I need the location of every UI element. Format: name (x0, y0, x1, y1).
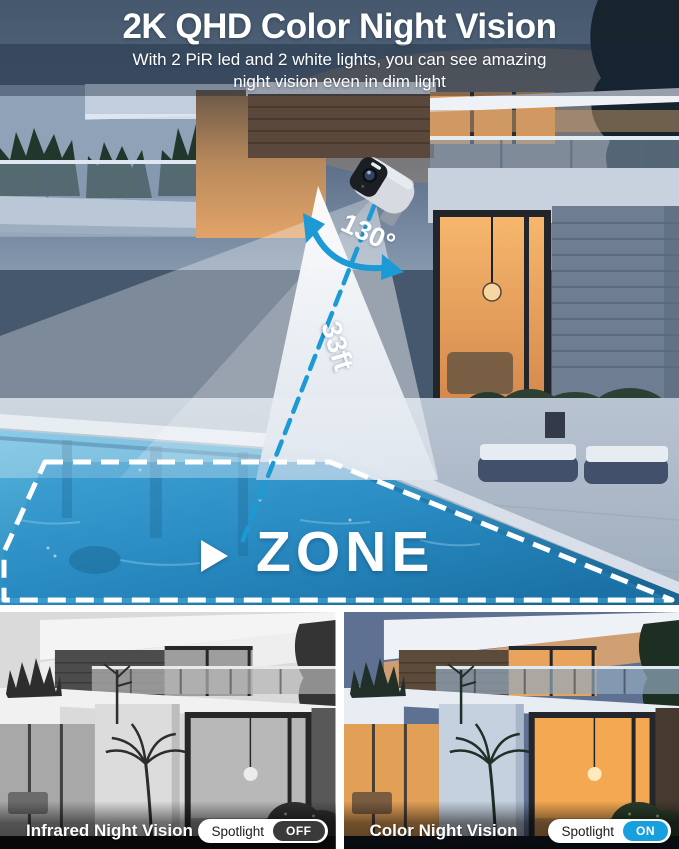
zone-label: ZONE (256, 524, 434, 581)
night-vision-comparison: Infrared Night Vision Spotlight OFF Colo… (0, 612, 679, 849)
infrared-image: Infrared Night Vision Spotlight OFF (0, 612, 336, 849)
hero-scene: 2K QHD Color Night Vision With 2 PiR led… (0, 0, 679, 605)
spotlight-on-badge: ON (623, 821, 668, 841)
play-icon (201, 540, 228, 572)
color-caption: Color Night Vision (370, 821, 518, 841)
color-image: Color Night Vision Spotlight ON (344, 612, 679, 849)
spotlight-label: Spotlight (561, 824, 614, 839)
spotlight-off-badge: OFF (273, 821, 325, 841)
subtitle-band: With 2 PiR led and 2 white lights, you c… (0, 44, 679, 96)
section-divider (0, 605, 679, 612)
subtitle-line-1: With 2 PiR led and 2 white lights, you c… (0, 44, 679, 71)
zone-annotation: ZONE (201, 524, 434, 581)
spotlight-toggle-off: Spotlight OFF (198, 819, 327, 843)
color-label-row: Color Night Vision Spotlight ON (344, 819, 679, 843)
infrared-caption: Infrared Night Vision (26, 821, 193, 841)
spotlight-toggle-on: Spotlight ON (548, 819, 671, 843)
product-poster: 2K QHD Color Night Vision With 2 PiR led… (0, 0, 679, 849)
right-house (428, 88, 679, 425)
subtitle-line-2: night vision even in dim light (0, 71, 679, 93)
spotlight-label: Spotlight (211, 824, 264, 839)
page-title: 2K QHD Color Night Vision (0, 8, 679, 46)
infrared-label-row: Infrared Night Vision Spotlight OFF (0, 819, 336, 843)
